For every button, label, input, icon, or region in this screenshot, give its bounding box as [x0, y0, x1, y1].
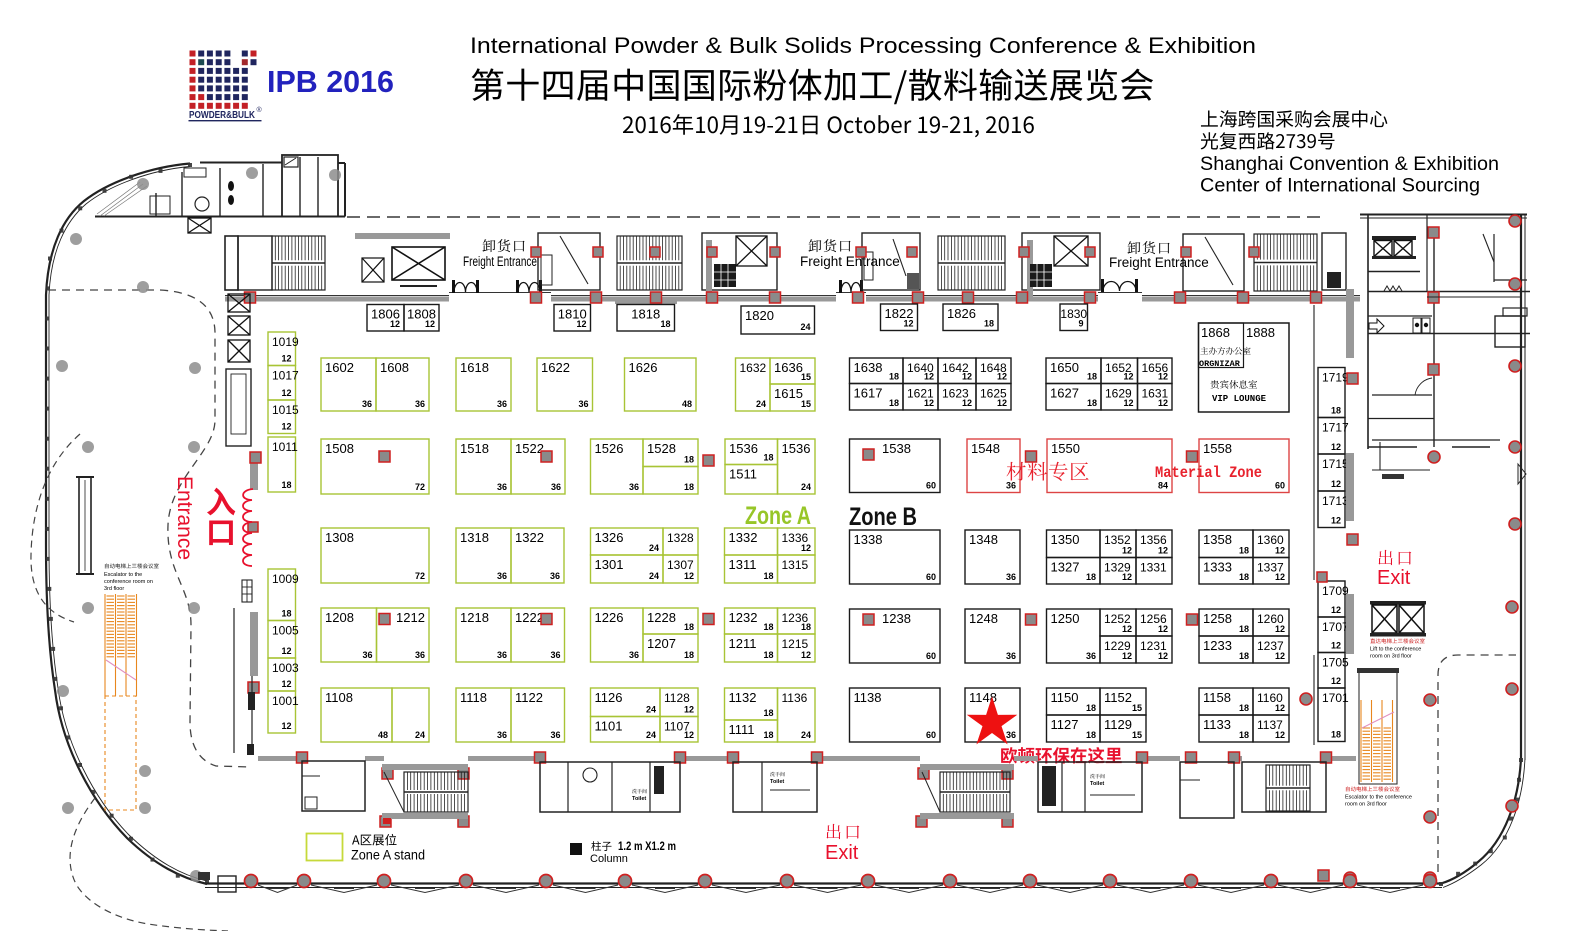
svg-text:1627: 1627 — [1050, 386, 1079, 401]
svg-text:1.2 m X1.2 m: 1.2 m X1.2 m — [618, 839, 676, 853]
svg-text:1015: 1015 — [272, 403, 299, 417]
svg-text:1208: 1208 — [325, 610, 354, 625]
svg-text:Shanghai Convention & Exhibiti: Shanghai Convention & Exhibition — [1200, 154, 1499, 175]
svg-text:18: 18 — [763, 622, 773, 632]
svg-text:18: 18 — [1239, 703, 1249, 713]
svg-text:1538: 1538 — [882, 441, 911, 456]
svg-text:1528: 1528 — [647, 441, 676, 456]
svg-text:1715: 1715 — [1322, 457, 1349, 471]
svg-text:1608: 1608 — [380, 360, 409, 375]
svg-text:1318: 1318 — [460, 530, 489, 545]
svg-text:Lift to the conference: Lift to the conference — [1370, 647, 1421, 653]
svg-text:1218: 1218 — [460, 610, 489, 625]
svg-text:24: 24 — [649, 543, 659, 553]
svg-text:12: 12 — [1122, 546, 1132, 556]
svg-text:1005: 1005 — [272, 624, 299, 638]
svg-text:1707: 1707 — [1322, 620, 1349, 634]
svg-text:9: 9 — [1078, 319, 1083, 329]
svg-text:Escalator to the: Escalator to the — [104, 572, 142, 578]
svg-text:1158: 1158 — [1203, 690, 1231, 705]
svg-text:84: 84 — [1158, 481, 1168, 491]
svg-text:1233: 1233 — [1203, 638, 1232, 653]
svg-text:1709: 1709 — [1322, 584, 1349, 598]
svg-text:VIP LOUNGE: VIP LOUNGE — [1212, 394, 1267, 404]
svg-text:Material Zone: Material Zone — [1155, 464, 1262, 482]
svg-text:3rd floor: 3rd floor — [104, 586, 124, 592]
svg-text:24: 24 — [646, 730, 656, 740]
svg-text:24: 24 — [649, 571, 659, 581]
svg-text:36: 36 — [362, 399, 372, 409]
svg-text:POWDER&BULK: POWDER&BULK — [189, 110, 256, 121]
svg-text:12: 12 — [684, 705, 694, 715]
svg-text:1350: 1350 — [1051, 532, 1080, 547]
svg-text:18: 18 — [281, 480, 291, 490]
svg-text:1111: 1111 — [729, 722, 755, 737]
svg-text:36: 36 — [1006, 481, 1016, 491]
svg-text:18: 18 — [763, 730, 773, 740]
svg-text:Zone A: Zone A — [745, 502, 811, 530]
svg-text:1009: 1009 — [272, 572, 299, 586]
svg-text:12: 12 — [1275, 651, 1285, 661]
svg-text:12: 12 — [903, 319, 913, 329]
svg-text:1548: 1548 — [971, 441, 1000, 456]
svg-text:12: 12 — [390, 319, 400, 329]
svg-text:1207: 1207 — [647, 636, 676, 651]
svg-text:1248: 1248 — [969, 611, 998, 626]
svg-text:1228: 1228 — [647, 610, 676, 625]
svg-text:12: 12 — [281, 354, 291, 364]
svg-text:1358: 1358 — [1203, 532, 1232, 547]
svg-text:12: 12 — [1122, 624, 1132, 634]
svg-text:12: 12 — [684, 730, 694, 740]
svg-text:1108: 1108 — [325, 690, 353, 705]
svg-text:Freight Entrance: Freight Entrance — [463, 254, 537, 269]
svg-text:36: 36 — [629, 650, 639, 660]
svg-text:1526: 1526 — [595, 441, 624, 456]
svg-text:1868: 1868 — [1201, 325, 1230, 340]
svg-text:18: 18 — [1087, 398, 1097, 408]
svg-text:Zone A stand: Zone A stand — [351, 848, 425, 863]
svg-text:1136: 1136 — [782, 691, 808, 705]
svg-text:18: 18 — [684, 455, 694, 465]
svg-text:36: 36 — [497, 571, 507, 581]
svg-text:18: 18 — [763, 708, 773, 718]
svg-text:12: 12 — [1123, 372, 1133, 382]
svg-text:1713: 1713 — [1322, 494, 1349, 508]
svg-text:1101: 1101 — [595, 719, 623, 734]
svg-text:1701: 1701 — [1322, 691, 1349, 705]
svg-text:1122: 1122 — [515, 690, 543, 705]
svg-text:36: 36 — [1006, 572, 1016, 582]
svg-text:12: 12 — [1122, 651, 1132, 661]
svg-text:12: 12 — [1331, 479, 1341, 489]
svg-text:1126: 1126 — [595, 690, 623, 705]
svg-text:Toilet: Toilet — [632, 796, 646, 802]
svg-text:Exit: Exit — [1377, 567, 1411, 589]
svg-text:18: 18 — [763, 571, 773, 581]
svg-text:36: 36 — [1006, 651, 1016, 661]
svg-text:12: 12 — [281, 388, 291, 398]
svg-text:18: 18 — [1331, 406, 1341, 416]
svg-text:36: 36 — [550, 571, 560, 581]
svg-text:1152: 1152 — [1104, 690, 1132, 705]
svg-text:1129: 1129 — [1104, 717, 1132, 732]
svg-text:1250: 1250 — [1051, 611, 1080, 626]
svg-text:1215: 1215 — [782, 637, 809, 651]
svg-text:18: 18 — [889, 398, 899, 408]
svg-text:1307: 1307 — [667, 558, 694, 572]
svg-text:12: 12 — [962, 398, 972, 408]
svg-text:1636: 1636 — [774, 360, 803, 375]
svg-text:IPB 2016: IPB 2016 — [267, 64, 394, 99]
svg-text:12: 12 — [1275, 730, 1285, 740]
svg-text:1508: 1508 — [325, 441, 354, 456]
svg-text:36: 36 — [550, 650, 560, 660]
svg-text:36: 36 — [415, 399, 425, 409]
svg-text:36: 36 — [497, 730, 507, 740]
svg-text:1017: 1017 — [272, 369, 299, 383]
svg-text:12: 12 — [1275, 624, 1285, 634]
svg-text:1719: 1719 — [1322, 371, 1349, 385]
svg-text:60: 60 — [1275, 481, 1285, 491]
svg-text:room on 3rd floor: room on 3rd floor — [1370, 654, 1412, 660]
svg-text:1511: 1511 — [729, 467, 757, 482]
svg-text:1717: 1717 — [1322, 421, 1349, 435]
svg-text:12: 12 — [801, 543, 811, 553]
svg-text:1326: 1326 — [595, 530, 624, 545]
svg-text:12: 12 — [1158, 546, 1168, 556]
svg-text:1311: 1311 — [729, 557, 757, 572]
svg-text:ORGNIZAR: ORGNIZAR — [1199, 359, 1241, 369]
svg-text:1019: 1019 — [272, 335, 299, 349]
svg-text:12: 12 — [281, 422, 291, 432]
svg-text:36: 36 — [497, 399, 507, 409]
svg-text:1705: 1705 — [1322, 656, 1349, 670]
svg-text:12: 12 — [997, 398, 1007, 408]
svg-text:Toilet: Toilet — [1090, 781, 1104, 787]
svg-text:1518: 1518 — [460, 441, 489, 456]
svg-text:12: 12 — [1331, 605, 1341, 615]
svg-text:1617: 1617 — [854, 386, 883, 401]
svg-text:1232: 1232 — [729, 610, 758, 625]
svg-text:1212: 1212 — [396, 610, 425, 625]
svg-text:18: 18 — [1086, 572, 1096, 582]
svg-text:1322: 1322 — [515, 530, 544, 545]
svg-text:1128: 1128 — [664, 691, 690, 705]
svg-text:24: 24 — [646, 705, 656, 715]
svg-text:18: 18 — [1086, 730, 1096, 740]
svg-text:1001: 1001 — [272, 694, 299, 708]
svg-text:18: 18 — [1087, 372, 1097, 382]
svg-text:Zone B: Zone B — [849, 503, 917, 531]
svg-text:18: 18 — [1086, 703, 1096, 713]
svg-text:1150: 1150 — [1051, 690, 1079, 705]
svg-text:15: 15 — [1132, 703, 1142, 713]
svg-text:room on 3rd floor: room on 3rd floor — [1345, 802, 1387, 808]
svg-text:12: 12 — [1275, 546, 1285, 556]
svg-text:Entrance: Entrance — [173, 476, 196, 560]
svg-text:18: 18 — [1239, 651, 1249, 661]
svg-text:®: ® — [257, 106, 263, 114]
svg-text:48: 48 — [682, 399, 692, 409]
svg-text:36: 36 — [578, 399, 588, 409]
svg-text:1826: 1826 — [947, 306, 976, 321]
svg-text:Toilet: Toilet — [770, 779, 784, 785]
svg-text:18: 18 — [660, 319, 670, 329]
svg-text:1332: 1332 — [729, 530, 758, 545]
svg-text:1118: 1118 — [460, 690, 487, 705]
svg-text:1618: 1618 — [460, 360, 489, 375]
svg-text:12: 12 — [1275, 572, 1285, 582]
svg-text:18: 18 — [1239, 730, 1249, 740]
svg-text:72: 72 — [415, 482, 425, 492]
svg-text:1602: 1602 — [325, 360, 354, 375]
svg-text:18: 18 — [801, 622, 811, 632]
svg-text:1888: 1888 — [1246, 325, 1275, 340]
svg-text:60: 60 — [926, 572, 936, 582]
svg-text:International Powder & Bulk So: International Powder & Bulk Solids Proce… — [470, 33, 1256, 58]
svg-text:12: 12 — [576, 319, 586, 329]
svg-text:12: 12 — [1122, 572, 1132, 582]
svg-text:18: 18 — [684, 650, 694, 660]
svg-text:1226: 1226 — [595, 610, 624, 625]
svg-text:1638: 1638 — [854, 360, 883, 375]
svg-text:1315: 1315 — [782, 558, 809, 572]
svg-text:1258: 1258 — [1203, 611, 1232, 626]
svg-text:12: 12 — [1158, 624, 1168, 634]
svg-text:12: 12 — [1331, 442, 1341, 452]
svg-text:18: 18 — [1239, 624, 1249, 634]
svg-text:1331: 1331 — [1140, 561, 1167, 575]
svg-text:18: 18 — [281, 609, 291, 619]
svg-text:1550: 1550 — [1051, 441, 1080, 456]
svg-text:1333: 1333 — [1203, 560, 1232, 575]
svg-text:1211: 1211 — [729, 636, 757, 651]
svg-text:18: 18 — [684, 622, 694, 632]
svg-text:18: 18 — [1331, 730, 1341, 740]
svg-text:Exit: Exit — [825, 842, 859, 864]
svg-text:12: 12 — [1123, 398, 1133, 408]
svg-text:1522: 1522 — [515, 441, 544, 456]
svg-text:12: 12 — [281, 721, 291, 731]
svg-text:1536: 1536 — [729, 441, 758, 456]
svg-text:1127: 1127 — [1051, 717, 1079, 732]
svg-text:24: 24 — [415, 730, 425, 740]
svg-text:24: 24 — [800, 322, 810, 332]
svg-text:12: 12 — [1331, 676, 1341, 686]
svg-text:1558: 1558 — [1203, 441, 1232, 456]
svg-text:24: 24 — [756, 399, 766, 409]
svg-text:1650: 1650 — [1050, 360, 1079, 375]
svg-text:36: 36 — [415, 650, 425, 660]
svg-text:60: 60 — [926, 481, 936, 491]
svg-text:1308: 1308 — [325, 530, 354, 545]
svg-text:Freight Entrance: Freight Entrance — [1109, 255, 1209, 270]
svg-text:1818: 1818 — [631, 307, 660, 322]
svg-text:12: 12 — [997, 372, 1007, 382]
svg-text:1301: 1301 — [595, 557, 624, 572]
svg-text:18: 18 — [984, 319, 994, 329]
svg-text:1328: 1328 — [667, 531, 694, 545]
svg-text:36: 36 — [551, 482, 561, 492]
svg-text:1626: 1626 — [629, 360, 658, 375]
svg-text:1011: 1011 — [272, 440, 298, 454]
svg-text:1622: 1622 — [541, 360, 570, 375]
svg-text:72: 72 — [415, 571, 425, 581]
svg-text:60: 60 — [926, 730, 936, 740]
svg-text:12: 12 — [1331, 641, 1341, 651]
svg-text:12: 12 — [684, 571, 694, 581]
svg-text:1348: 1348 — [969, 532, 998, 547]
svg-text:12: 12 — [1275, 703, 1285, 713]
svg-text:1536: 1536 — [782, 441, 811, 456]
svg-text:18: 18 — [1239, 546, 1249, 556]
svg-text:12: 12 — [281, 679, 291, 689]
svg-text:1632: 1632 — [740, 361, 767, 375]
svg-text:36: 36 — [629, 482, 639, 492]
svg-text:1238: 1238 — [882, 611, 911, 626]
svg-text:Escalator to the conference: Escalator to the conference — [1345, 795, 1412, 801]
svg-text:12: 12 — [1158, 372, 1168, 382]
svg-text:1338: 1338 — [854, 532, 883, 547]
svg-text:18: 18 — [889, 372, 899, 382]
svg-text:1615: 1615 — [774, 386, 803, 401]
svg-text:18: 18 — [684, 482, 694, 492]
svg-text:18: 18 — [1239, 572, 1249, 582]
svg-text:15: 15 — [801, 372, 811, 382]
svg-text:36: 36 — [362, 650, 372, 660]
svg-text:1003: 1003 — [272, 661, 299, 675]
svg-text:1133: 1133 — [1203, 717, 1231, 732]
svg-text:24: 24 — [801, 482, 811, 492]
svg-text:12: 12 — [425, 319, 435, 329]
svg-text:36: 36 — [497, 650, 507, 660]
svg-text:1222: 1222 — [515, 610, 544, 625]
svg-text:36: 36 — [1006, 730, 1016, 740]
svg-text:12: 12 — [801, 650, 811, 660]
svg-text:36: 36 — [550, 730, 560, 740]
svg-text:12: 12 — [281, 646, 291, 656]
svg-text:12: 12 — [924, 398, 934, 408]
svg-text:12: 12 — [1331, 516, 1341, 526]
svg-text:15: 15 — [1132, 730, 1142, 740]
svg-text:conference room on: conference room on — [104, 579, 153, 585]
svg-text:12: 12 — [924, 372, 934, 382]
svg-text:18: 18 — [763, 453, 773, 463]
svg-text:1132: 1132 — [729, 690, 757, 705]
svg-text:Freight Entrance: Freight Entrance — [800, 254, 900, 269]
svg-text:12: 12 — [962, 372, 972, 382]
svg-text:36: 36 — [497, 482, 507, 492]
svg-text:48: 48 — [378, 730, 388, 740]
svg-text:18: 18 — [763, 650, 773, 660]
svg-text:Center of International Sourci: Center of International Sourcing — [1200, 176, 1480, 197]
svg-text:12: 12 — [1158, 651, 1168, 661]
svg-text:12: 12 — [1158, 398, 1168, 408]
svg-text:60: 60 — [926, 651, 936, 661]
svg-text:1138: 1138 — [854, 690, 882, 705]
svg-text:1327: 1327 — [1051, 560, 1080, 575]
svg-text:1820: 1820 — [745, 308, 774, 323]
svg-text:36: 36 — [1086, 651, 1096, 661]
svg-text:15: 15 — [801, 399, 811, 409]
svg-text:Column: Column — [590, 853, 628, 865]
svg-text:24: 24 — [801, 730, 811, 740]
